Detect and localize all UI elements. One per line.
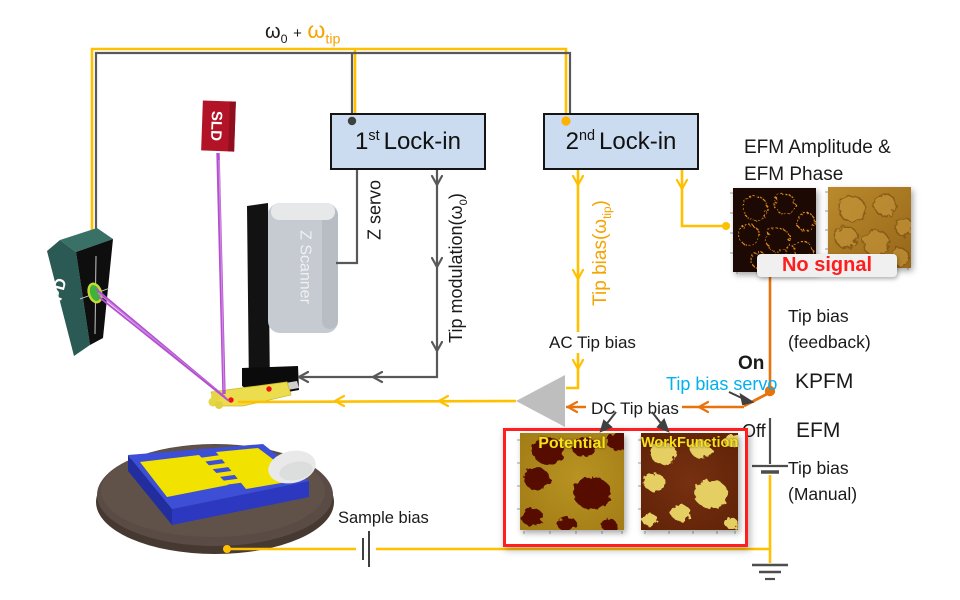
first-lockin-box: 1stLock-in [330,113,486,170]
tip-bias-manual-label: Tip bias (Manual) [788,458,857,506]
ac-tip-bias-label: AC Tip bias [546,332,639,353]
pspd-detector: PSPD [43,228,113,356]
battery-symbol-tip [752,466,788,472]
kpfm-mode-label: KPFM [795,369,853,395]
switch-lever[interactable] [744,394,767,406]
tip-modulation-label: Tip modulation(ω0) [446,193,470,343]
workfunction-label: WorkFunction [641,435,738,451]
z-servo-label: Z servo [365,180,386,240]
amplifier-triangle [516,375,565,427]
workfunction-panel: WorkFunction [633,430,740,536]
sld-source: SLD [201,100,236,151]
sld-label: SLD [207,111,225,142]
ground-symbol [752,565,788,579]
potential-panel: Potential [510,430,626,536]
laser-dot-holder [266,386,271,391]
kpfm-efm-diagram: PSPD SLD [0,0,960,600]
sample-bias-label: Sample bias [338,508,429,529]
diagram-canvas: PSPD SLD [0,0,960,600]
efm-mode-label: EFM [796,418,840,444]
reflected-beam [96,289,229,401]
second-lockin-box: 2ndLock-in [543,113,699,170]
dc-tip-bias-label: DC Tip bias [588,398,682,419]
tip-bias-feedback-label: Tip bias (feedback) [788,306,871,354]
tip-bias-omega-label: Tip bias(ωtip) [590,200,614,306]
tip-bias-servo-label: Tip bias servo [666,373,777,396]
efm-output-title: EFM Amplitude & EFM Phase [744,136,891,187]
wire-z-servo [336,166,357,263]
laser-beams [96,153,229,401]
sample-stage [96,444,334,554]
z-scanner: Z Scanner [242,203,338,397]
omega-sum-label: ω0 + ωtip [265,16,340,49]
no-signal-badge: No signal [757,254,897,277]
wire-lockin2-to-efm-image [677,166,730,230]
battery-symbol-sample [363,531,369,567]
wire-ac-tip-bias [566,166,583,388]
z-scanner-label: Z Scanner [297,230,314,304]
potential-label: Potential [520,435,624,453]
